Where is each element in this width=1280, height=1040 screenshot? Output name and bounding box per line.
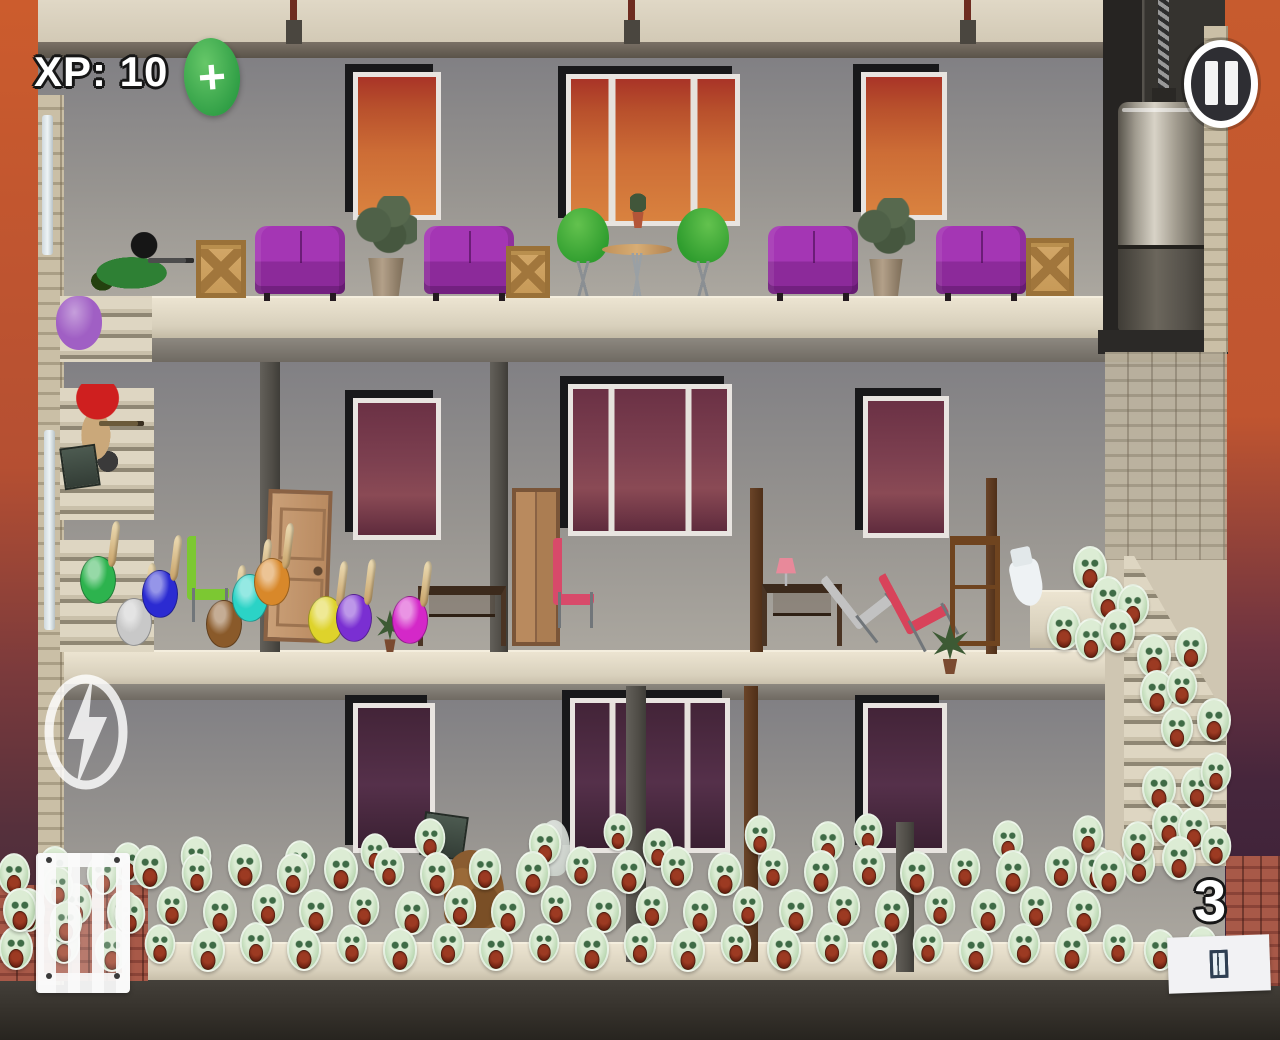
zombie xyxy=(1162,836,1196,880)
zombie xyxy=(1055,927,1089,971)
chair xyxy=(550,538,600,628)
zombie xyxy=(636,886,668,928)
zombie xyxy=(913,924,944,964)
bat-fighter xyxy=(392,596,428,644)
zombie xyxy=(1103,924,1134,964)
entity-layer xyxy=(0,0,1280,1040)
table-round xyxy=(602,222,672,296)
zombie xyxy=(1175,627,1207,669)
zombie xyxy=(1161,707,1193,749)
planter xyxy=(352,196,420,296)
zombie xyxy=(479,927,513,971)
planter xyxy=(854,198,918,296)
zombie xyxy=(349,887,380,927)
desk xyxy=(418,586,506,646)
zombie xyxy=(157,886,188,926)
crate xyxy=(196,240,246,298)
zombie xyxy=(624,923,656,965)
zombie xyxy=(1167,666,1198,706)
zombie xyxy=(383,928,417,972)
crate xyxy=(1026,238,1074,296)
zombie xyxy=(1101,609,1135,653)
bat-fighter xyxy=(254,558,290,606)
zombie xyxy=(575,927,609,971)
zombie xyxy=(1201,826,1232,866)
zombie xyxy=(240,922,272,964)
zombie xyxy=(1122,821,1154,863)
zombie xyxy=(1073,815,1104,855)
zombie xyxy=(287,927,321,971)
game-screen: XP: 10 + 3 xyxy=(0,0,1280,1040)
xp-label: XP: 10 xyxy=(34,48,168,96)
zombie xyxy=(133,845,167,889)
zombie xyxy=(145,924,176,964)
zombie xyxy=(0,926,33,970)
plus-label: + xyxy=(196,49,228,106)
couch xyxy=(424,226,514,294)
toilet xyxy=(1008,557,1047,608)
zombie xyxy=(228,844,262,888)
zombie xyxy=(182,853,213,893)
gunner-prone xyxy=(90,232,194,298)
zombie xyxy=(804,850,838,894)
zombie xyxy=(996,850,1030,894)
zombie xyxy=(516,851,550,895)
zombie xyxy=(566,846,597,886)
chair-green xyxy=(674,208,732,296)
zombie xyxy=(469,848,501,890)
bat-fighter xyxy=(80,556,116,604)
zombie xyxy=(721,924,752,964)
zombie xyxy=(863,927,897,971)
zombie xyxy=(191,928,225,972)
zombie xyxy=(374,847,405,887)
zombie xyxy=(959,928,993,972)
couch xyxy=(936,226,1026,294)
plant-pot xyxy=(628,192,648,228)
zombie xyxy=(1008,923,1040,965)
zombie xyxy=(337,924,368,964)
zombie xyxy=(432,923,464,965)
zombie xyxy=(3,888,37,932)
zombie xyxy=(1201,752,1232,792)
zombie xyxy=(1092,850,1126,894)
zombie xyxy=(971,889,1005,933)
board-icon xyxy=(1210,950,1229,979)
couch xyxy=(768,226,858,294)
lightning-icon[interactable] xyxy=(40,668,132,796)
zombie xyxy=(853,845,885,887)
zombie xyxy=(1045,846,1077,888)
zombie xyxy=(1197,698,1231,742)
boards-icon[interactable] xyxy=(1167,934,1271,994)
zombie xyxy=(529,923,560,963)
pause-icon[interactable] xyxy=(1184,40,1258,128)
zombie xyxy=(612,850,646,894)
zombie xyxy=(604,813,633,850)
plant-small xyxy=(932,624,968,674)
zombie xyxy=(444,885,476,927)
zombie xyxy=(671,928,705,972)
zombie xyxy=(816,922,848,964)
zombie xyxy=(252,884,284,926)
zombie xyxy=(767,927,801,971)
wave-count: 3 xyxy=(1194,868,1226,935)
bat-fighter xyxy=(336,594,372,642)
zombie xyxy=(277,853,309,895)
box-dark xyxy=(59,444,100,491)
couch xyxy=(255,226,345,294)
zombie xyxy=(324,847,358,891)
faller xyxy=(56,296,102,350)
zombie xyxy=(950,848,981,888)
lamp-pink xyxy=(776,558,796,586)
crate xyxy=(506,246,550,298)
zombie xyxy=(541,885,572,925)
zombie xyxy=(925,886,956,926)
zombie xyxy=(661,846,693,888)
cage-icon[interactable] xyxy=(36,853,130,993)
bat-fighter xyxy=(142,570,178,618)
zombie xyxy=(758,848,789,888)
zombie xyxy=(733,886,764,926)
zombie xyxy=(900,851,934,895)
zombie xyxy=(1020,886,1052,928)
zombie xyxy=(708,852,742,896)
